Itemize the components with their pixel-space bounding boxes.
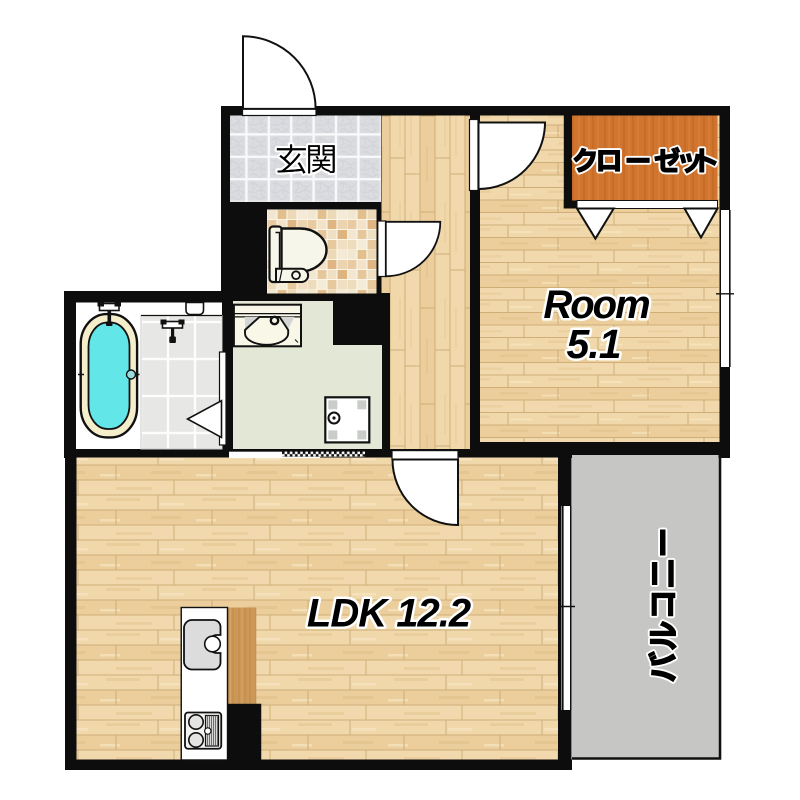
svg-text:5.1: 5.1 — [567, 321, 621, 367]
svg-text:LDK 12.2: LDK 12.2 — [307, 592, 471, 636]
